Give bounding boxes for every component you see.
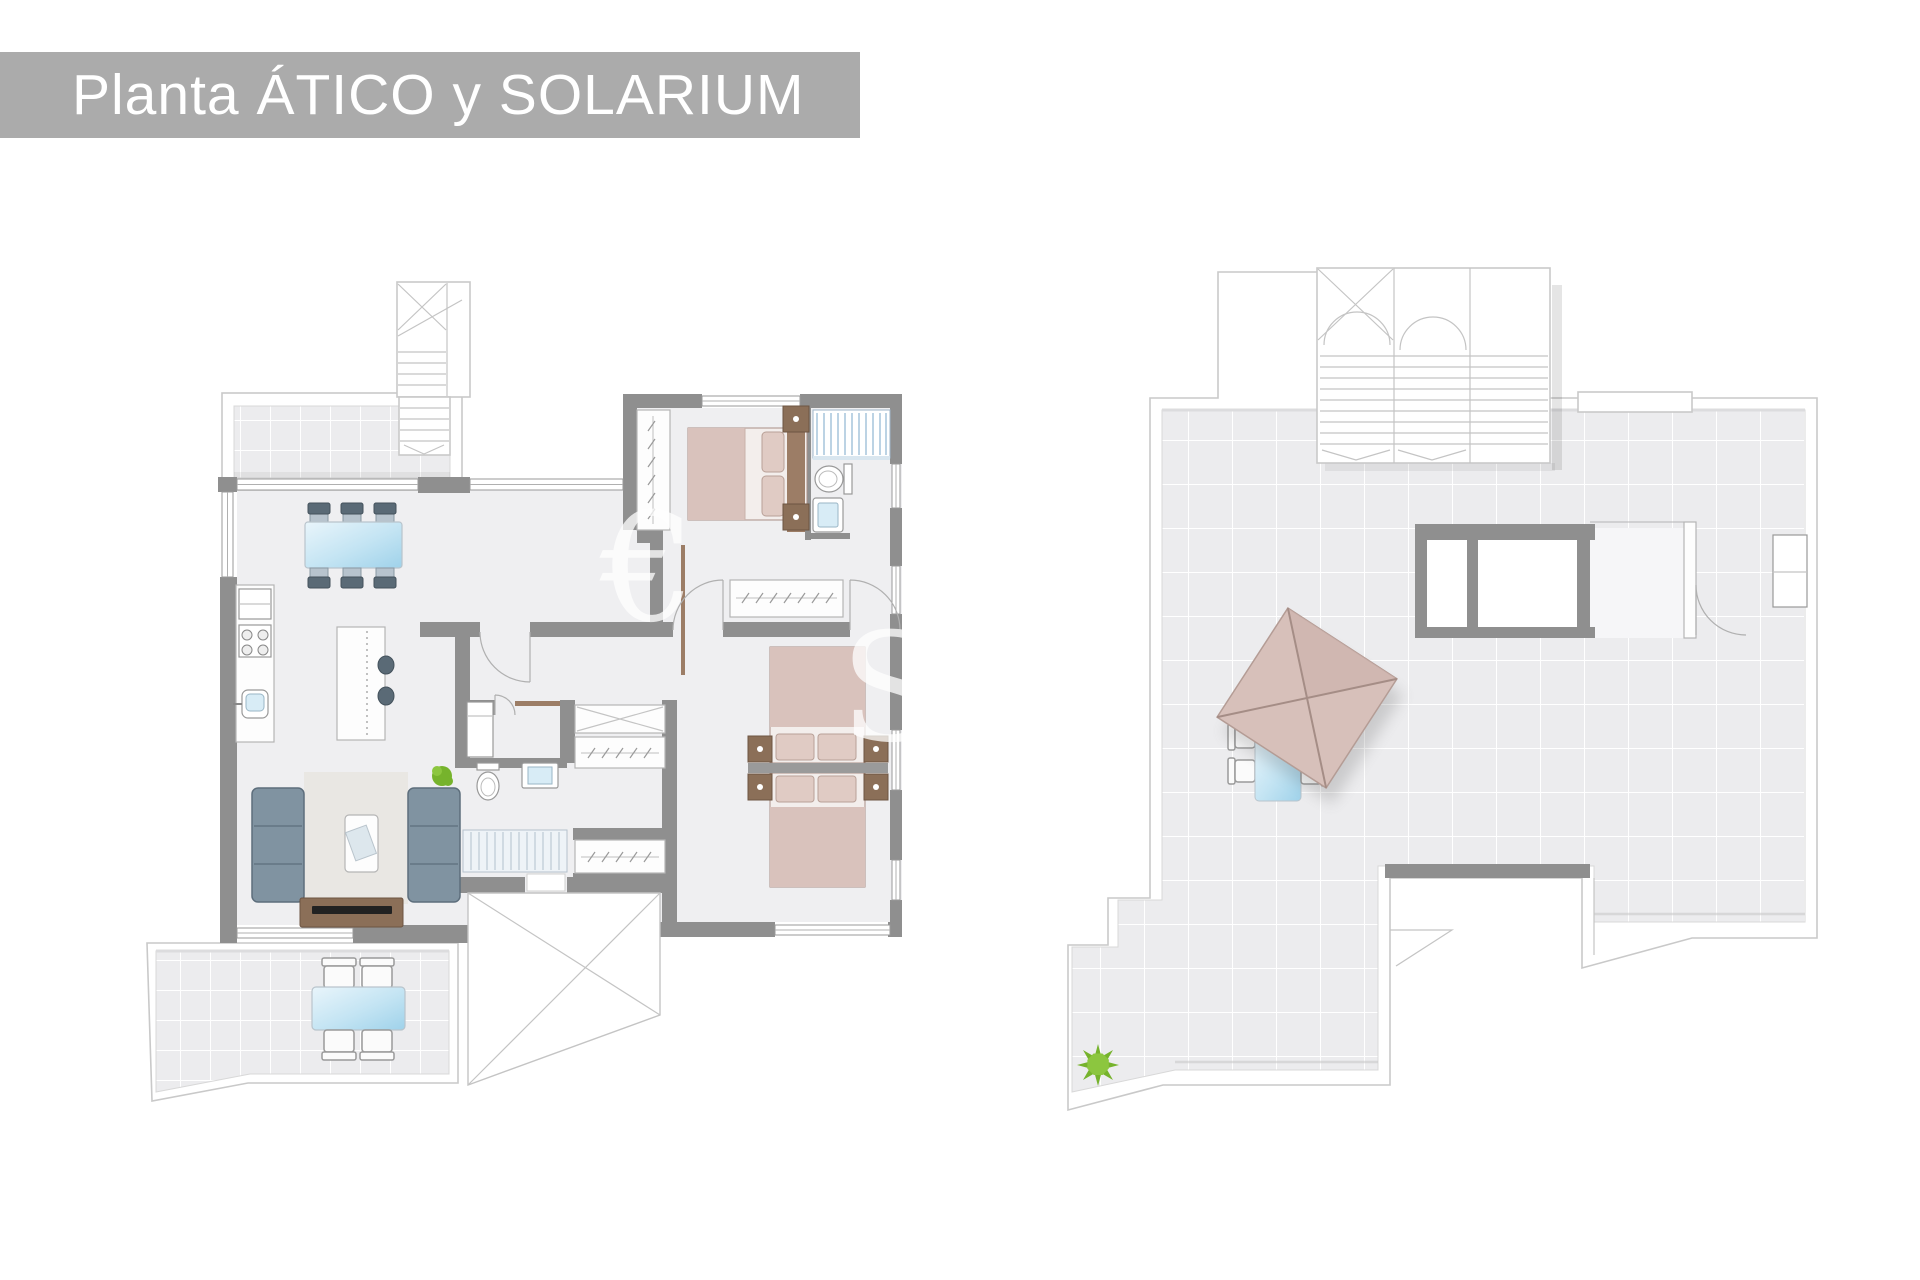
bar-stool [378, 687, 394, 705]
atico-floor-plan: € S [147, 282, 943, 1101]
sink-2 [522, 763, 558, 788]
parapet-step-lines [1390, 878, 1594, 966]
lower-terrace [147, 943, 458, 1101]
toilet [815, 464, 852, 494]
dining-chairs-bottom [308, 568, 396, 588]
closet-horizontal [730, 580, 843, 617]
sofa-left [252, 788, 304, 902]
stove [239, 625, 271, 657]
terrace-table [312, 987, 405, 1030]
watermark-s: S [840, 602, 943, 776]
toilet-2 [477, 763, 499, 800]
bathroom-sink [813, 498, 843, 532]
roof-cabinet [1773, 535, 1807, 607]
parapet-ledge [1578, 392, 1692, 412]
dining-set [305, 503, 402, 588]
void-opening [468, 893, 660, 1085]
coffee-table [345, 815, 378, 872]
shower [813, 410, 890, 460]
roof-plant [1077, 1044, 1119, 1086]
solarium-deck [1072, 410, 1805, 1092]
tv-unit [300, 898, 403, 927]
vanity [467, 702, 493, 757]
watermark-eur: € [599, 482, 695, 656]
solarium-roof-plan [1068, 268, 1817, 1110]
page: Planta ÁTICO y SOLARIUM [0, 0, 1920, 1280]
tv [312, 906, 392, 914]
dining-table [305, 522, 402, 568]
bar-stool [378, 656, 394, 674]
shelf [515, 701, 560, 706]
parapet-wall [1385, 864, 1590, 878]
kitchen-island [337, 627, 394, 740]
dining-chairs-top [308, 503, 396, 522]
floorplan-canvas: € S [0, 0, 1920, 1280]
roof-stair-block [1317, 268, 1562, 471]
roof-rooms [1415, 522, 1746, 638]
sofa-right [408, 788, 460, 902]
